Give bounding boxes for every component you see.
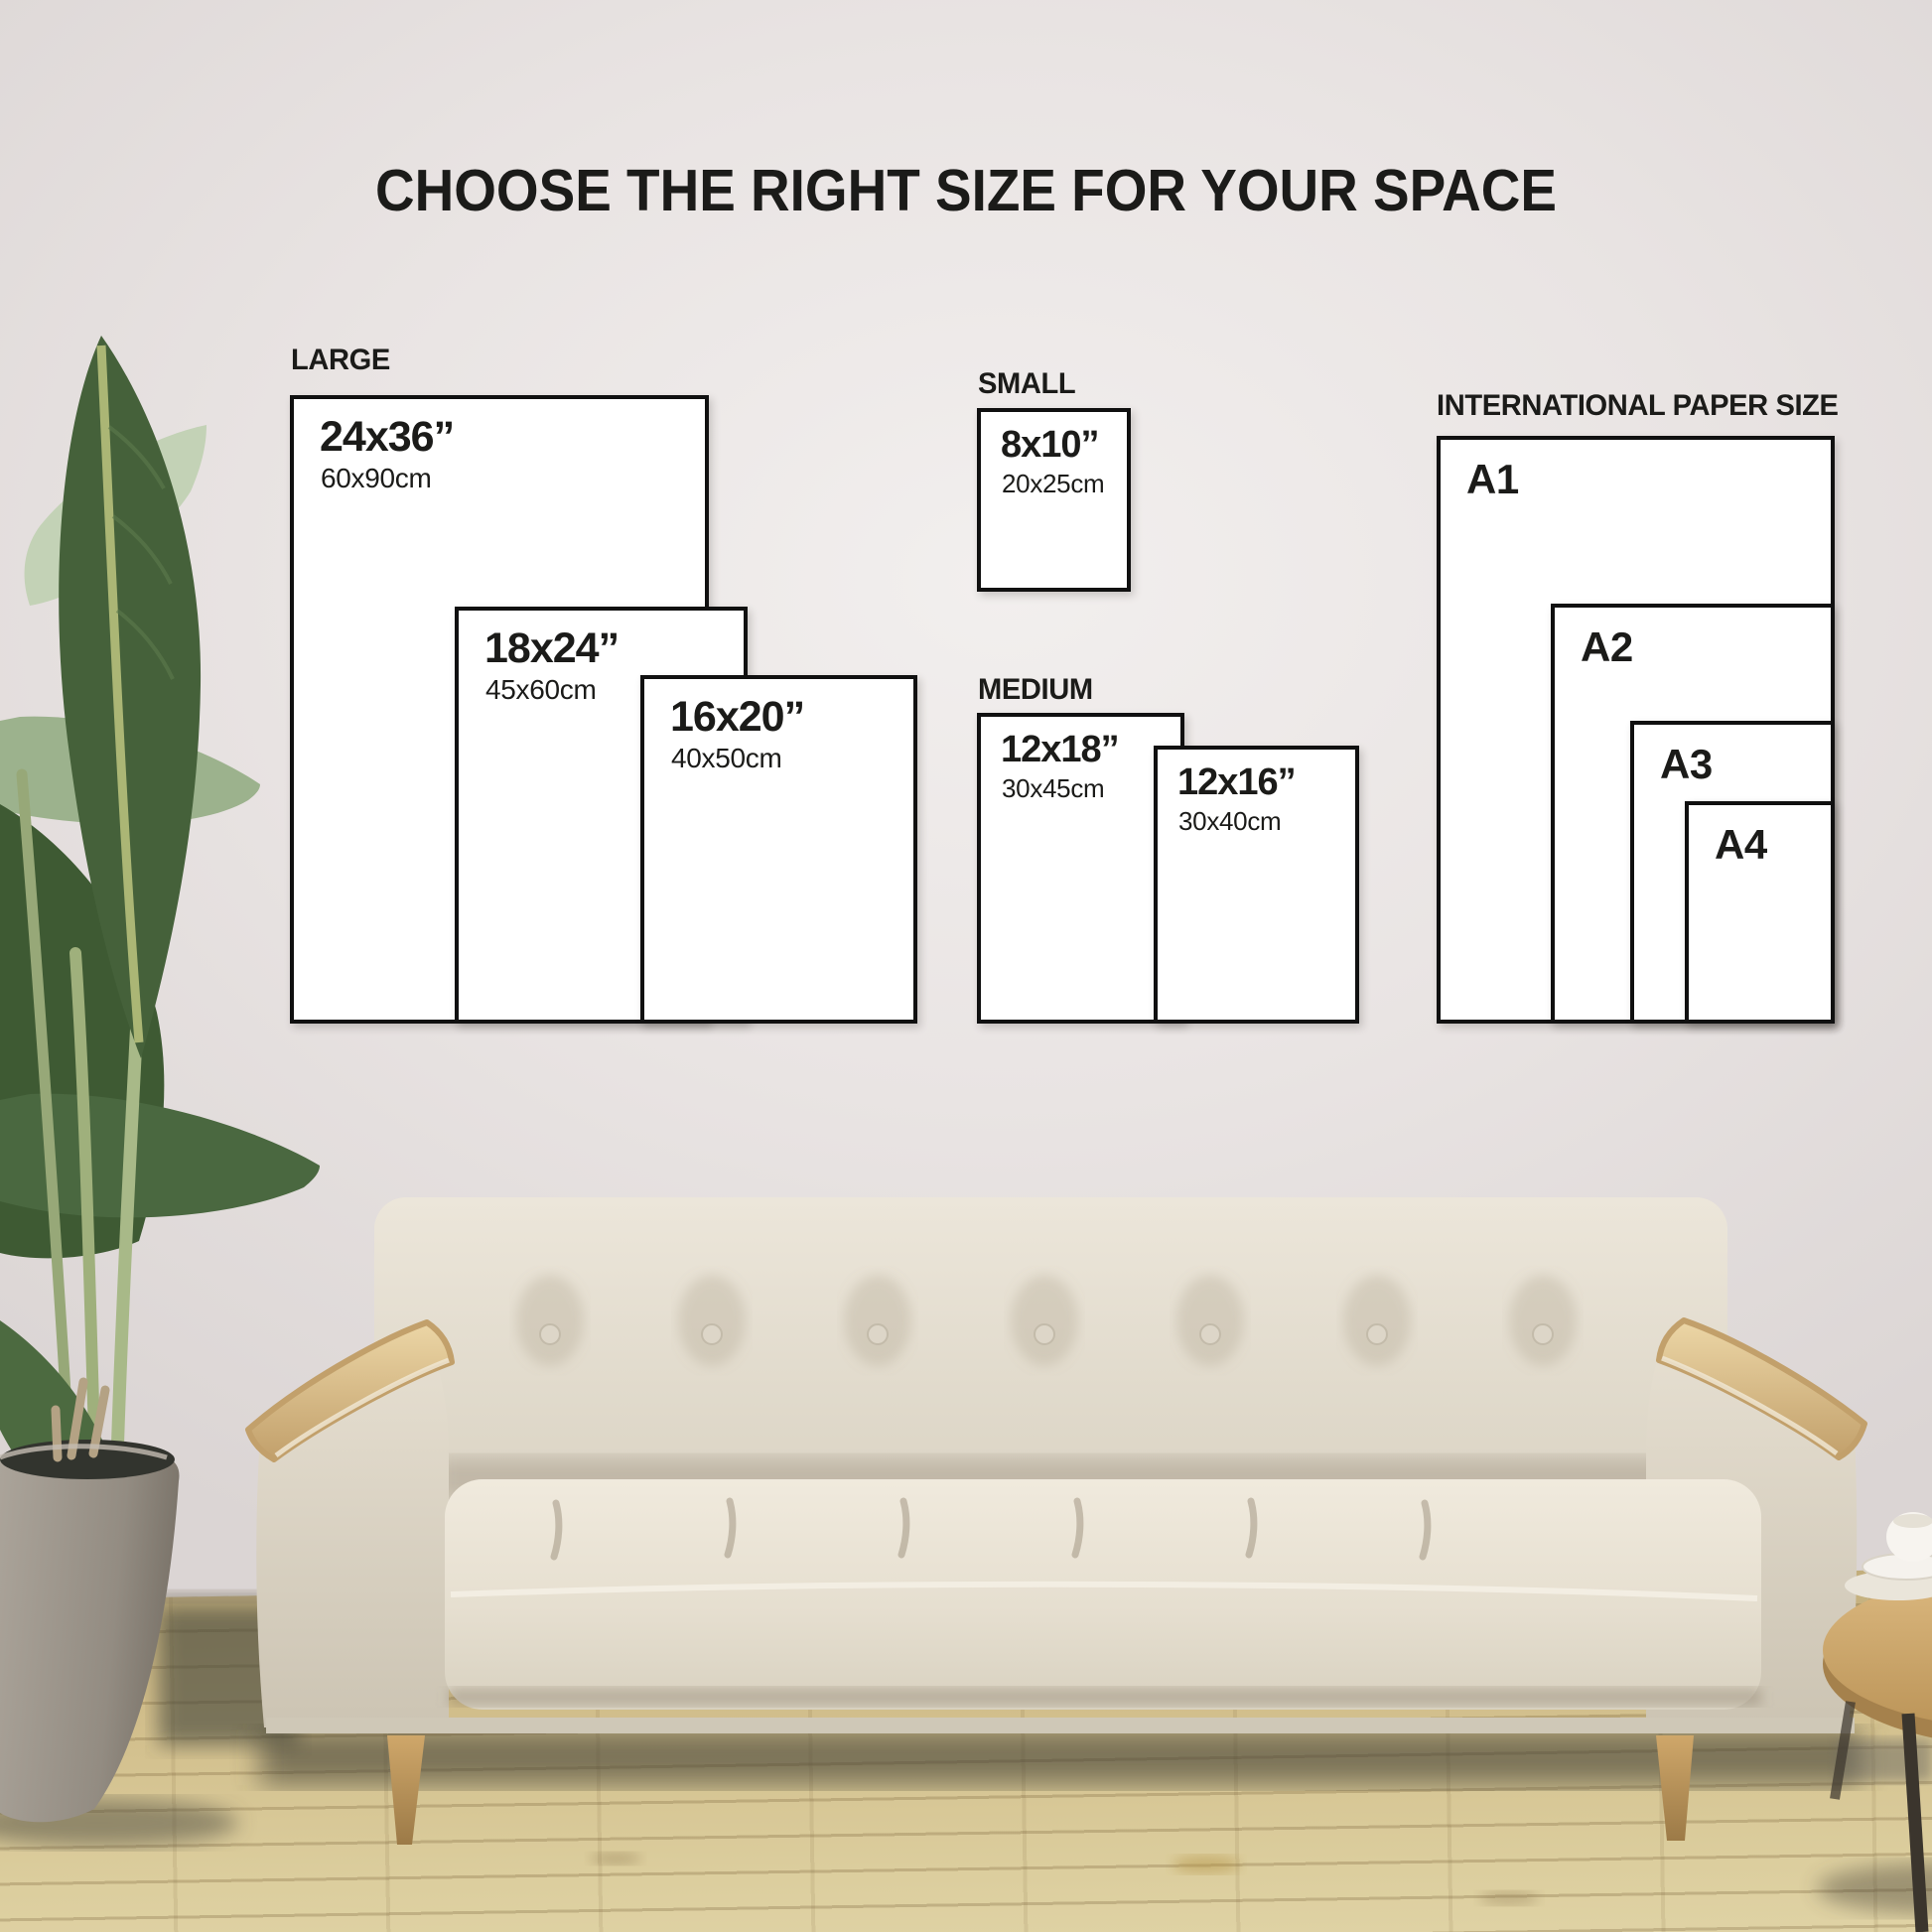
group-label-large: LARGE <box>291 344 390 377</box>
size-label-a4: A4 <box>1715 821 1831 869</box>
size-label-inches: 8x10” <box>1001 426 1127 466</box>
size-box-a4: A4 <box>1685 801 1835 1024</box>
group-label-medium: MEDIUM <box>978 673 1093 707</box>
page-title: CHOOSE THE RIGHT SIZE FOR YOUR SPACE <box>375 157 1557 224</box>
size-label-cm: 30x40cm <box>1178 807 1355 836</box>
size-box-8x10: 8x10” 20x25cm <box>977 408 1131 592</box>
size-label-inches: 16x20” <box>670 695 913 740</box>
size-box-12x16: 12x16” 30x40cm <box>1154 746 1359 1024</box>
group-label-small: SMALL <box>978 367 1075 401</box>
size-label-cm: 40x50cm <box>671 744 913 774</box>
size-label-cm: 20x25cm <box>1002 470 1127 498</box>
size-guide-overlay: CHOOSE THE RIGHT SIZE FOR YOUR SPACE LAR… <box>0 0 1932 1932</box>
size-guide-image: CHOOSE THE RIGHT SIZE FOR YOUR SPACE LAR… <box>0 0 1932 1932</box>
size-label-a1: A1 <box>1466 456 1831 503</box>
size-label-cm: 60x90cm <box>321 464 705 494</box>
size-label-a3: A3 <box>1660 741 1831 788</box>
size-label-inches: 12x16” <box>1177 763 1355 803</box>
size-label-inches: 18x24” <box>484 626 744 671</box>
size-label-inches: 24x36” <box>320 415 705 460</box>
size-box-16x20: 16x20” 40x50cm <box>640 675 917 1024</box>
size-label-a2: A2 <box>1581 623 1831 671</box>
group-label-international: INTERNATIONAL PAPER SIZE <box>1437 389 1839 423</box>
